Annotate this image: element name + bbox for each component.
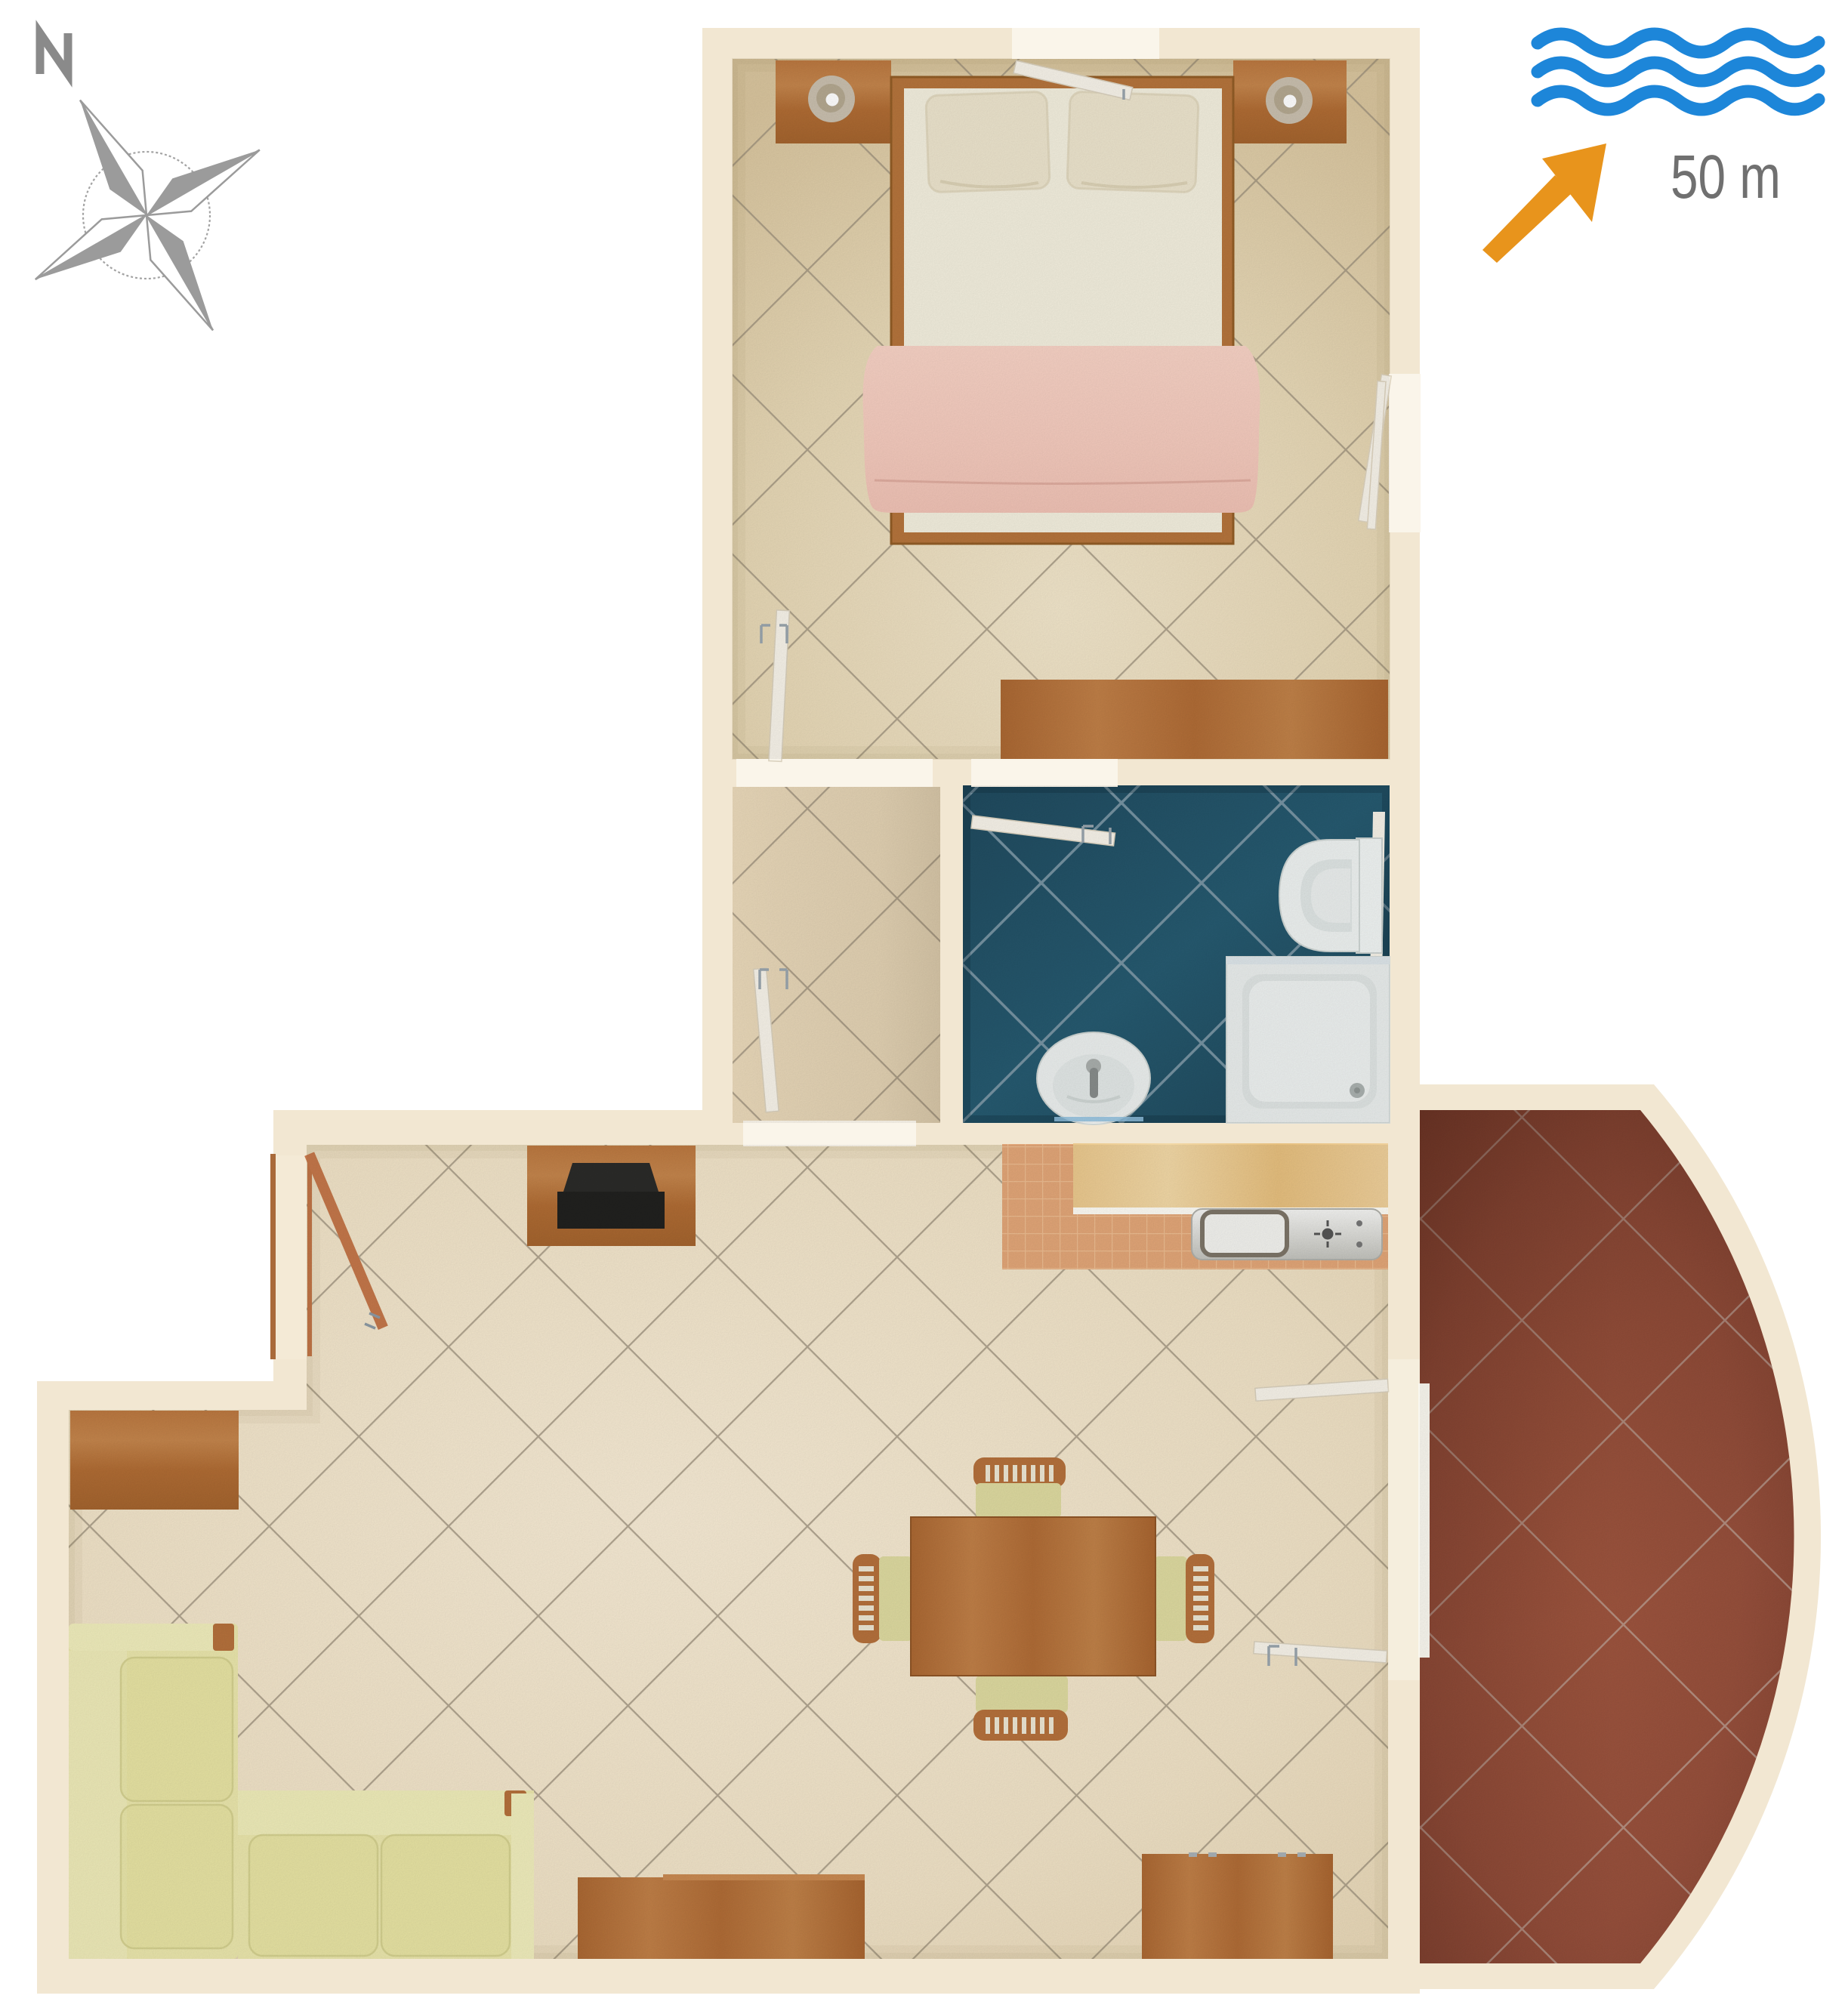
svg-text:50 m: 50 m — [1671, 143, 1781, 211]
